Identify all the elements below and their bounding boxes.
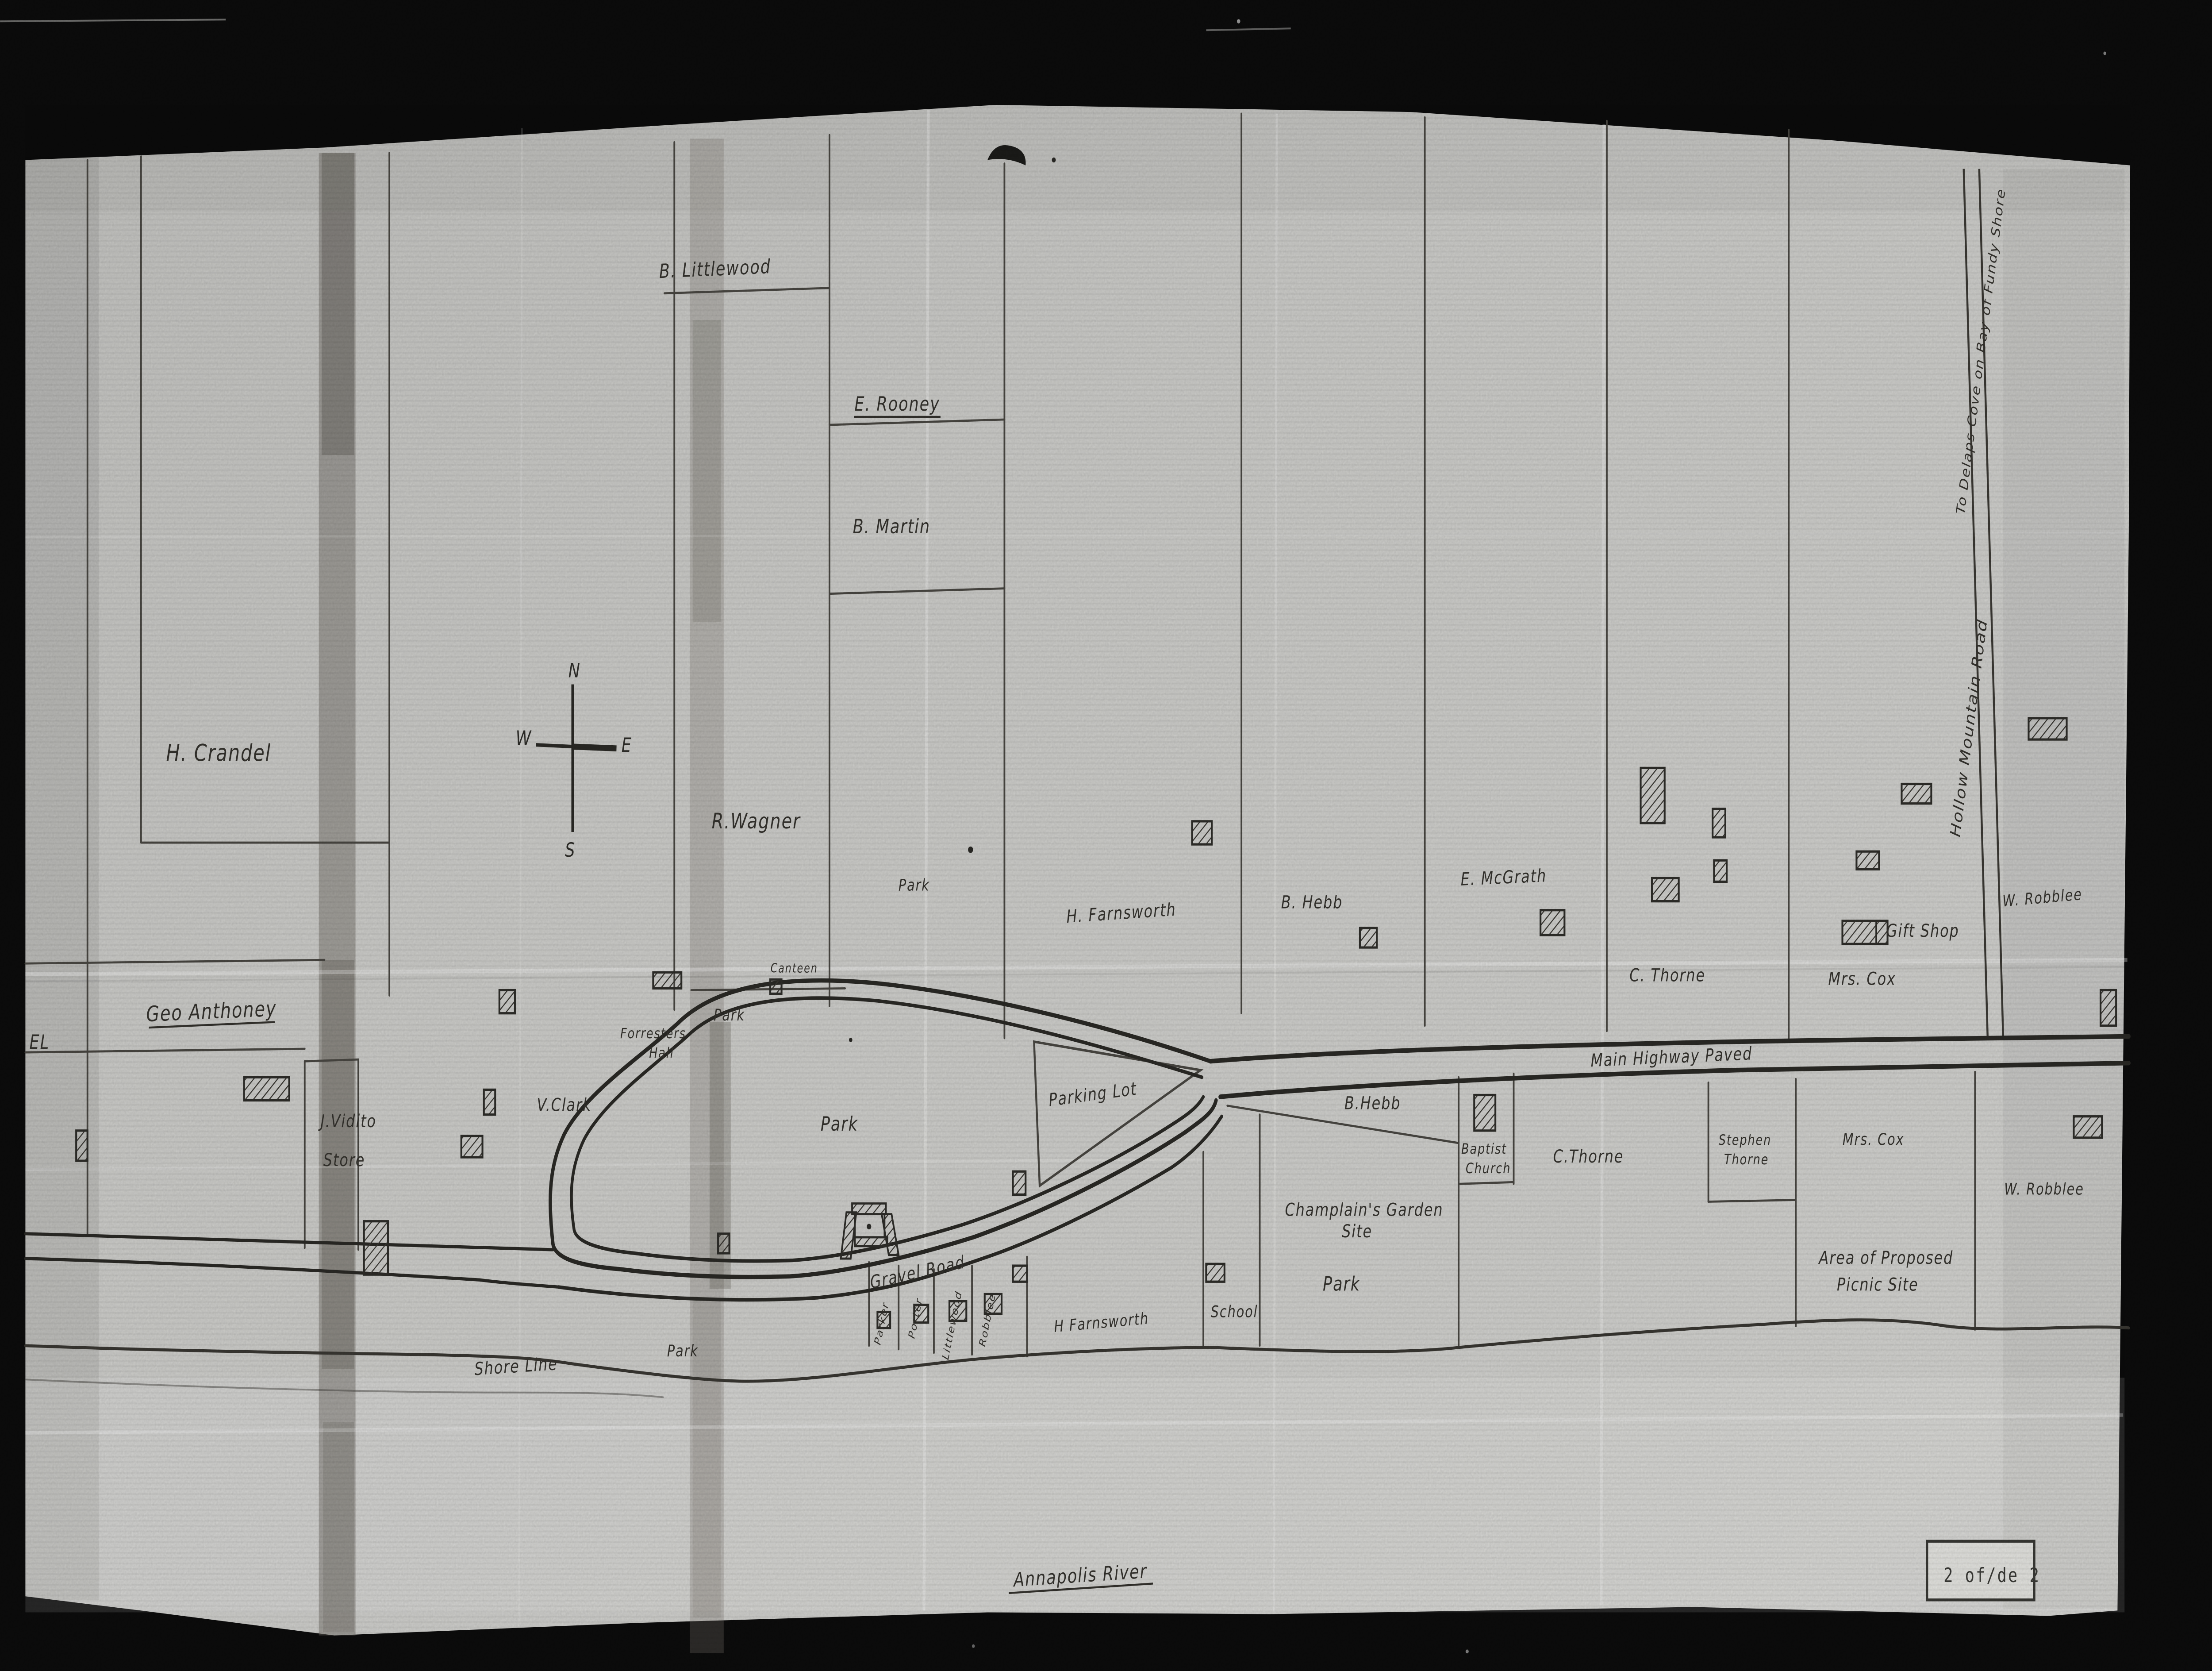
scanline-overlay xyxy=(0,0,2212,1671)
microfilm-scan-frame: N S W E H. CrandelELGeo AnthoneyJ.Vidito… xyxy=(0,0,2212,1671)
map-scan-svg: N S W E H. CrandelELGeo AnthoneyJ.Vidito… xyxy=(0,0,2212,1671)
